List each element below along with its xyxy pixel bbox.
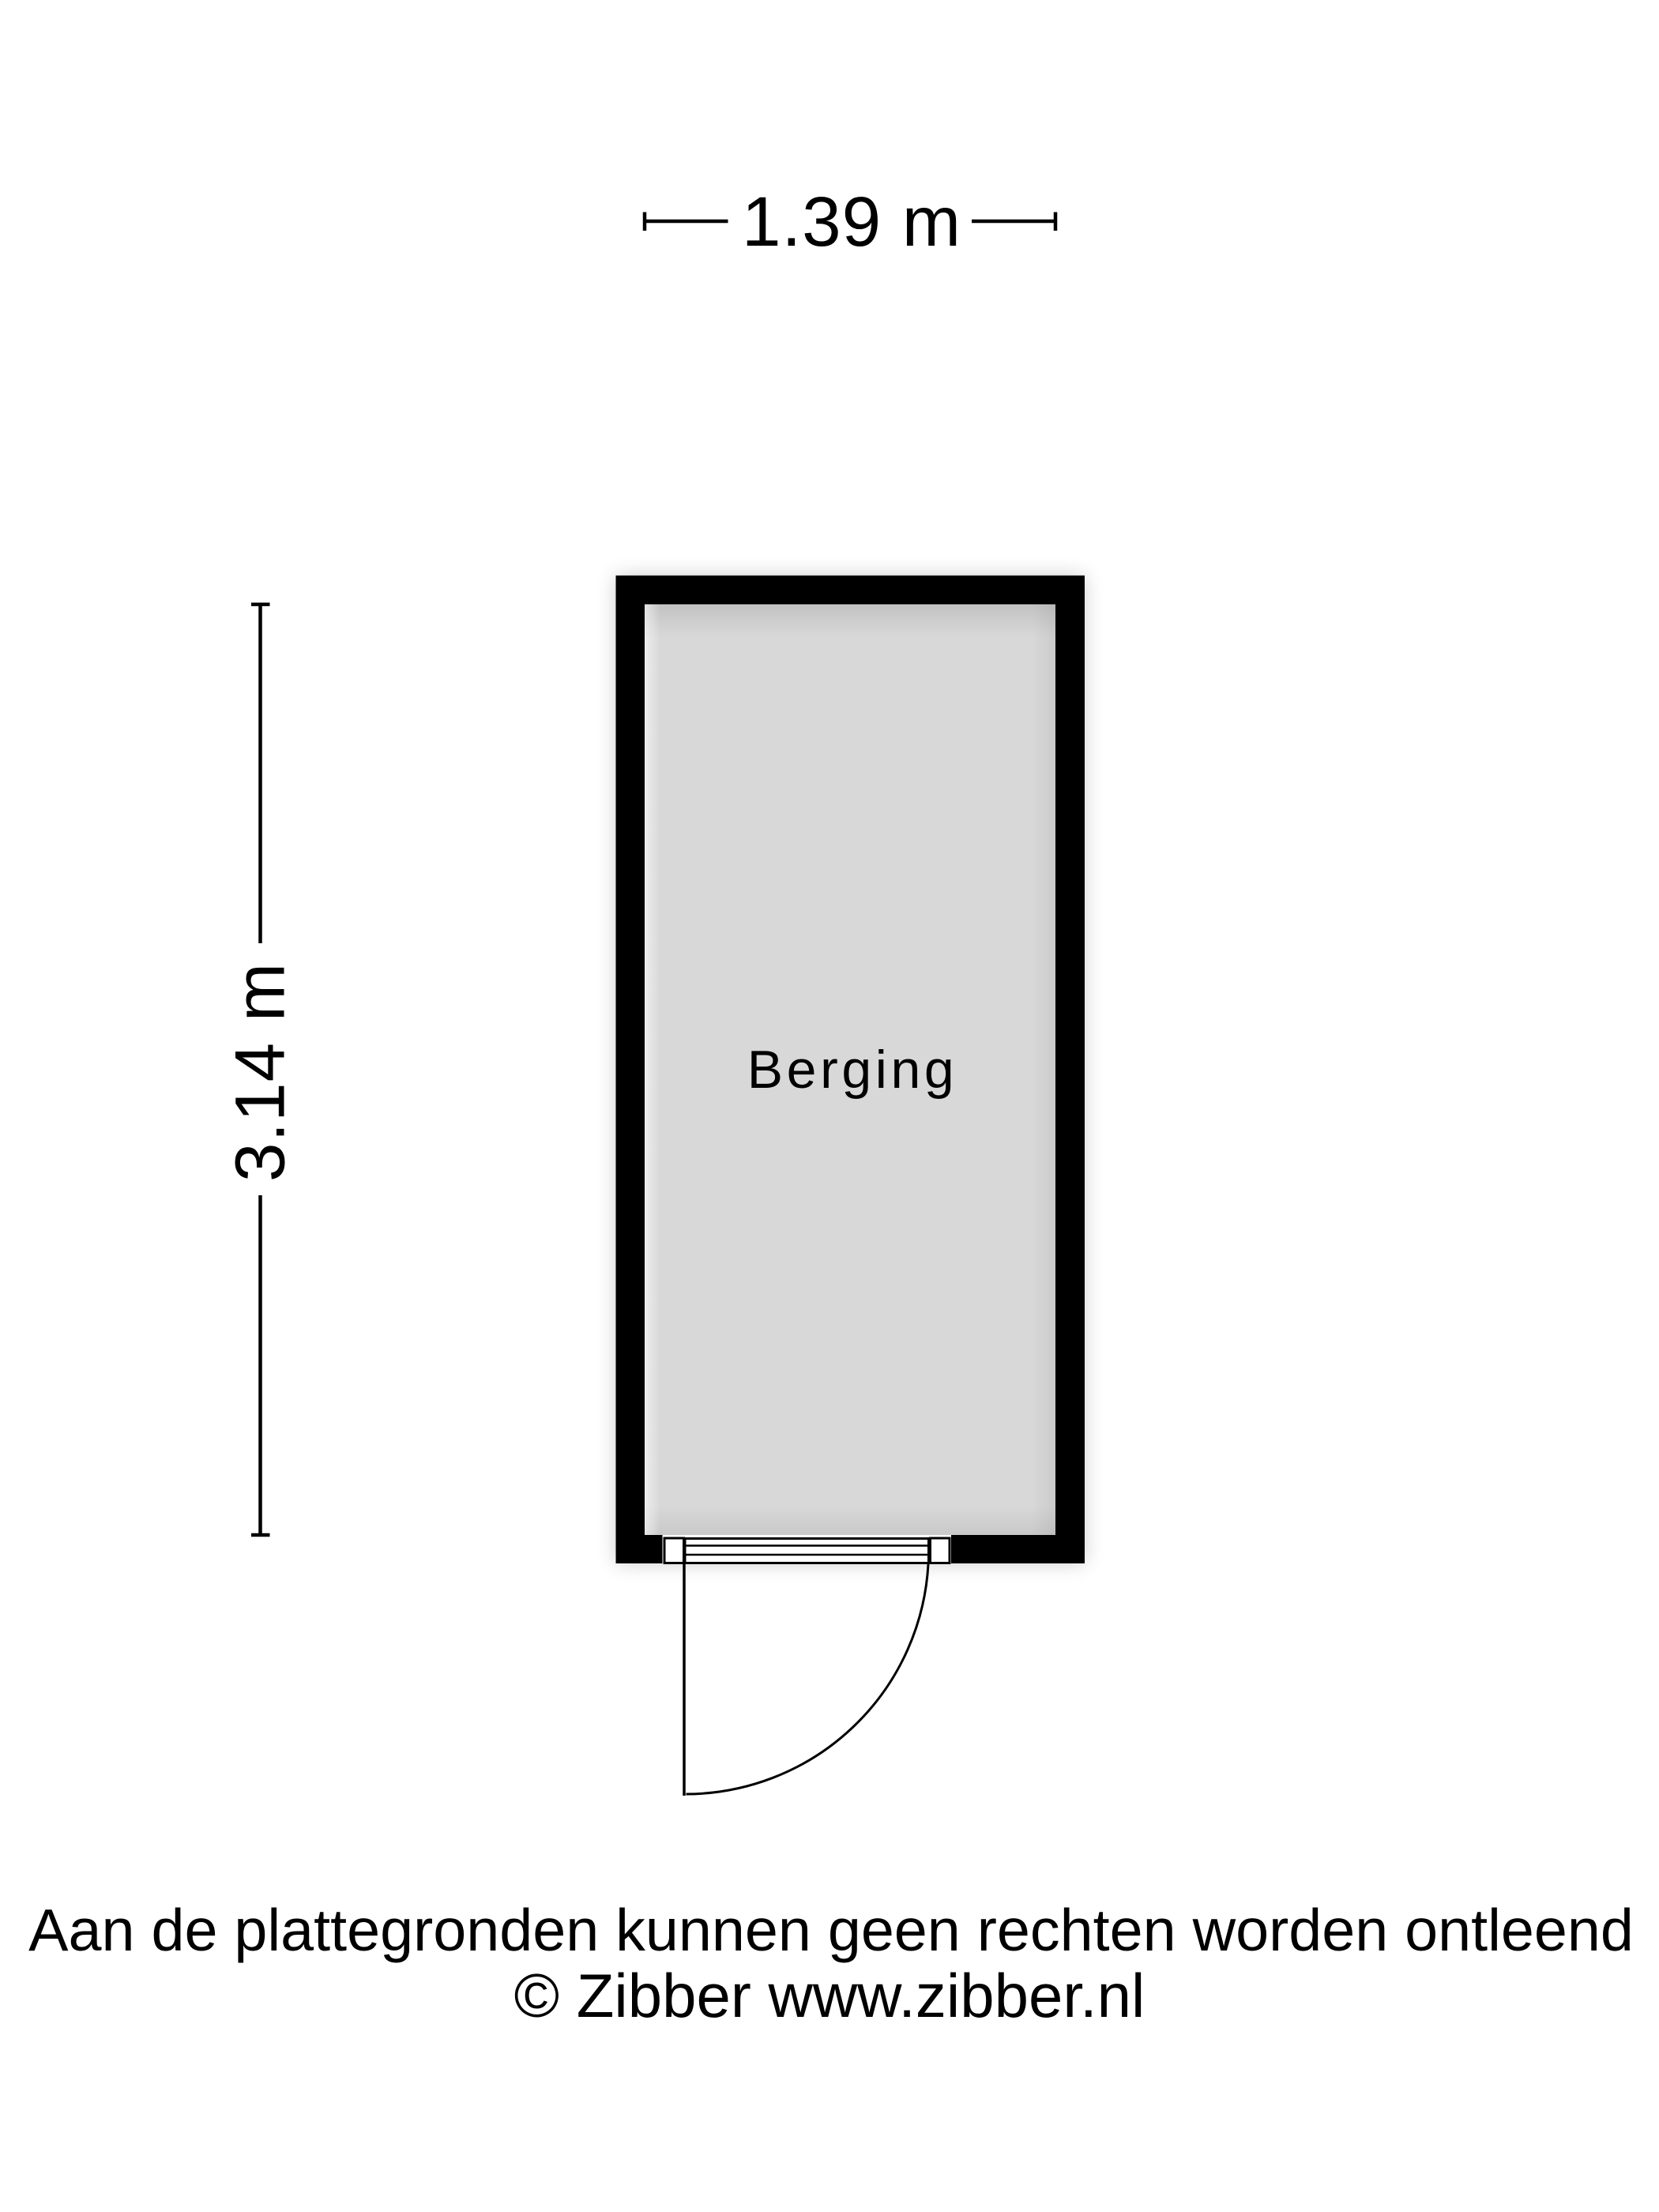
svg-text:Berging: Berging xyxy=(747,1040,958,1100)
svg-text:Aan de plattegronden kunnen ge: Aan de plattegronden kunnen geen rechten… xyxy=(28,1897,1634,1963)
svg-text:© Zibber www.zibber.nl: © Zibber www.zibber.nl xyxy=(514,1961,1145,2030)
svg-text:1.39 m: 1.39 m xyxy=(742,182,961,261)
svg-text:3.14 m: 3.14 m xyxy=(220,962,299,1182)
